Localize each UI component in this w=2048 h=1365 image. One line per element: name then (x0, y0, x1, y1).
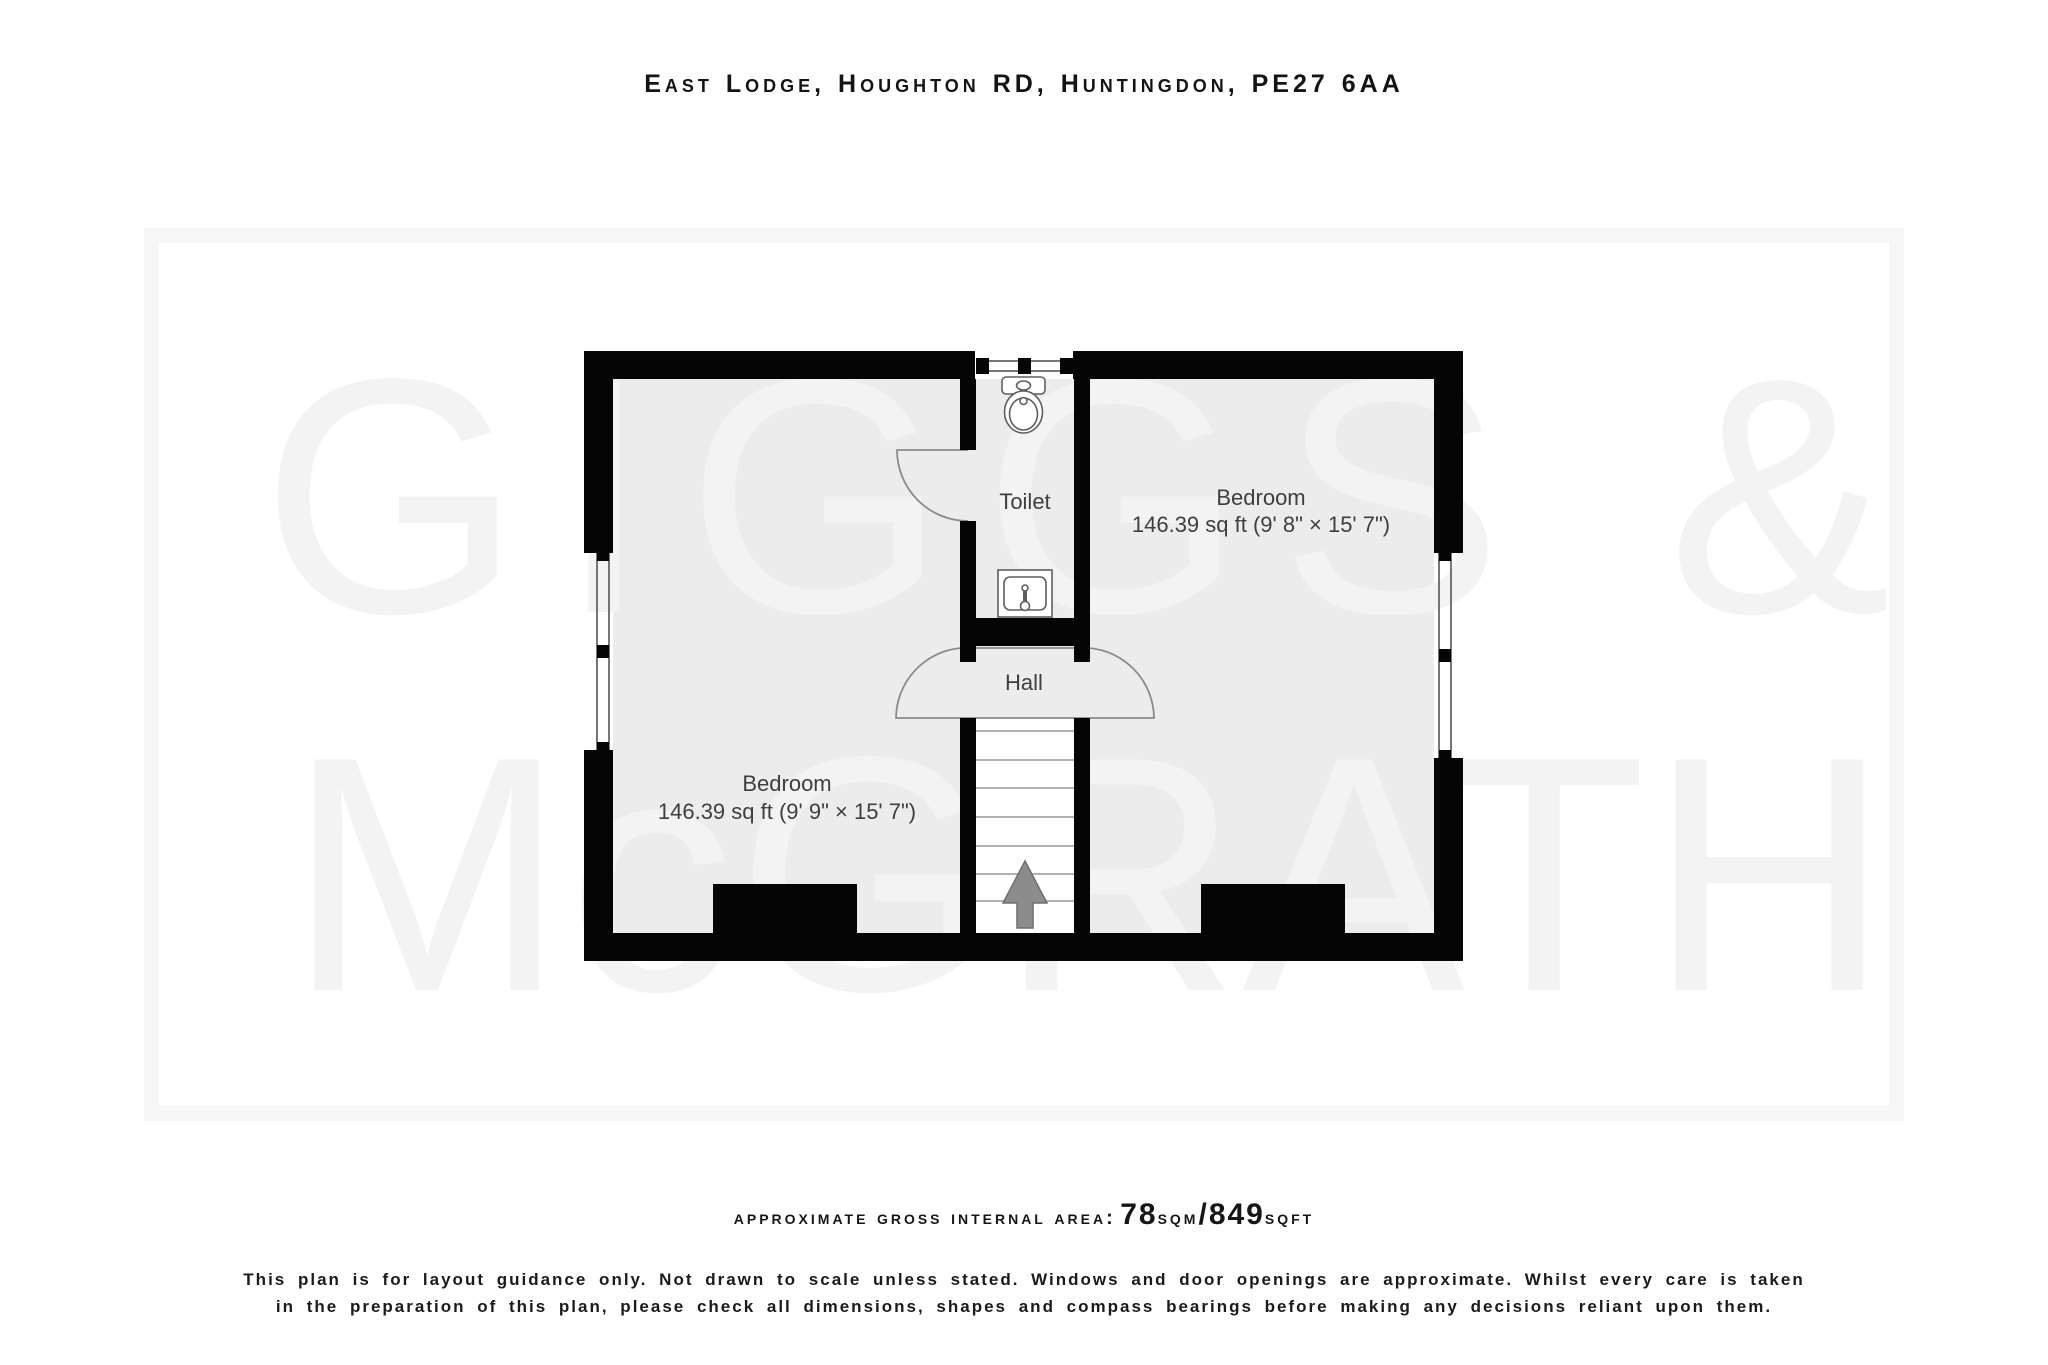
toilet-label: Toilet (999, 489, 1050, 514)
floorplan-canvas: GIGGS & McGRATH (0, 0, 2048, 1365)
bedroom-right-label: Bedroom (1216, 485, 1305, 510)
area-label: approximate gross internal area: (734, 1207, 1116, 1229)
area-sqft-unit: sqft (1265, 1207, 1314, 1229)
wall-right-upper (1434, 379, 1463, 553)
area-separator: / (1198, 1198, 1208, 1231)
bedroom-right-size: 146.39 sq ft (9' 8" × 15' 7") (1132, 512, 1390, 537)
disclaimer: This plan is for layout guidance only. N… (0, 1266, 2048, 1320)
wall-top-right (1073, 351, 1463, 379)
wall-left-lower (584, 750, 613, 933)
wall-stairs-left (960, 718, 976, 933)
sink-icon (998, 570, 1052, 617)
toilet-icon (1002, 377, 1045, 433)
floorplan-page: East Lodge, Houghton RD, Huntingdon, PE2… (0, 0, 2048, 1365)
wall-toilet-left-lower (960, 521, 976, 618)
area-sqm-unit: sqm (1158, 1207, 1199, 1229)
wall-toilet-right (1074, 379, 1090, 618)
wall-toilet-hall-divider (960, 618, 1090, 646)
wall-top-left (584, 351, 975, 379)
wall-hall-stub-right (1074, 646, 1090, 662)
wall-hall-stub-left (960, 646, 976, 662)
chimney-breast-left (713, 884, 857, 933)
wall-right-lower (1434, 758, 1463, 933)
stairs (976, 718, 1074, 933)
hall-label: Hall (1005, 670, 1043, 695)
disclaimer-line-2: in the preparation of this plan, please … (0, 1293, 2048, 1320)
disclaimer-line-1: This plan is for layout guidance only. N… (0, 1266, 2048, 1293)
wall-stairs-right (1074, 718, 1090, 933)
bedroom-left-label: Bedroom (742, 771, 831, 796)
wall-left-upper (584, 379, 613, 553)
area-summary: approximate gross internal area: 78sqm/8… (0, 1198, 2048, 1232)
wall-bottom (584, 933, 1463, 961)
chimney-breast-right (1201, 884, 1345, 933)
wall-toilet-left-upper (960, 379, 976, 450)
area-sqm-value: 78 (1120, 1198, 1157, 1231)
bedroom-left-size: 146.39 sq ft (9' 9" × 15' 7") (658, 799, 916, 824)
area-sqft-value: 849 (1209, 1198, 1265, 1231)
